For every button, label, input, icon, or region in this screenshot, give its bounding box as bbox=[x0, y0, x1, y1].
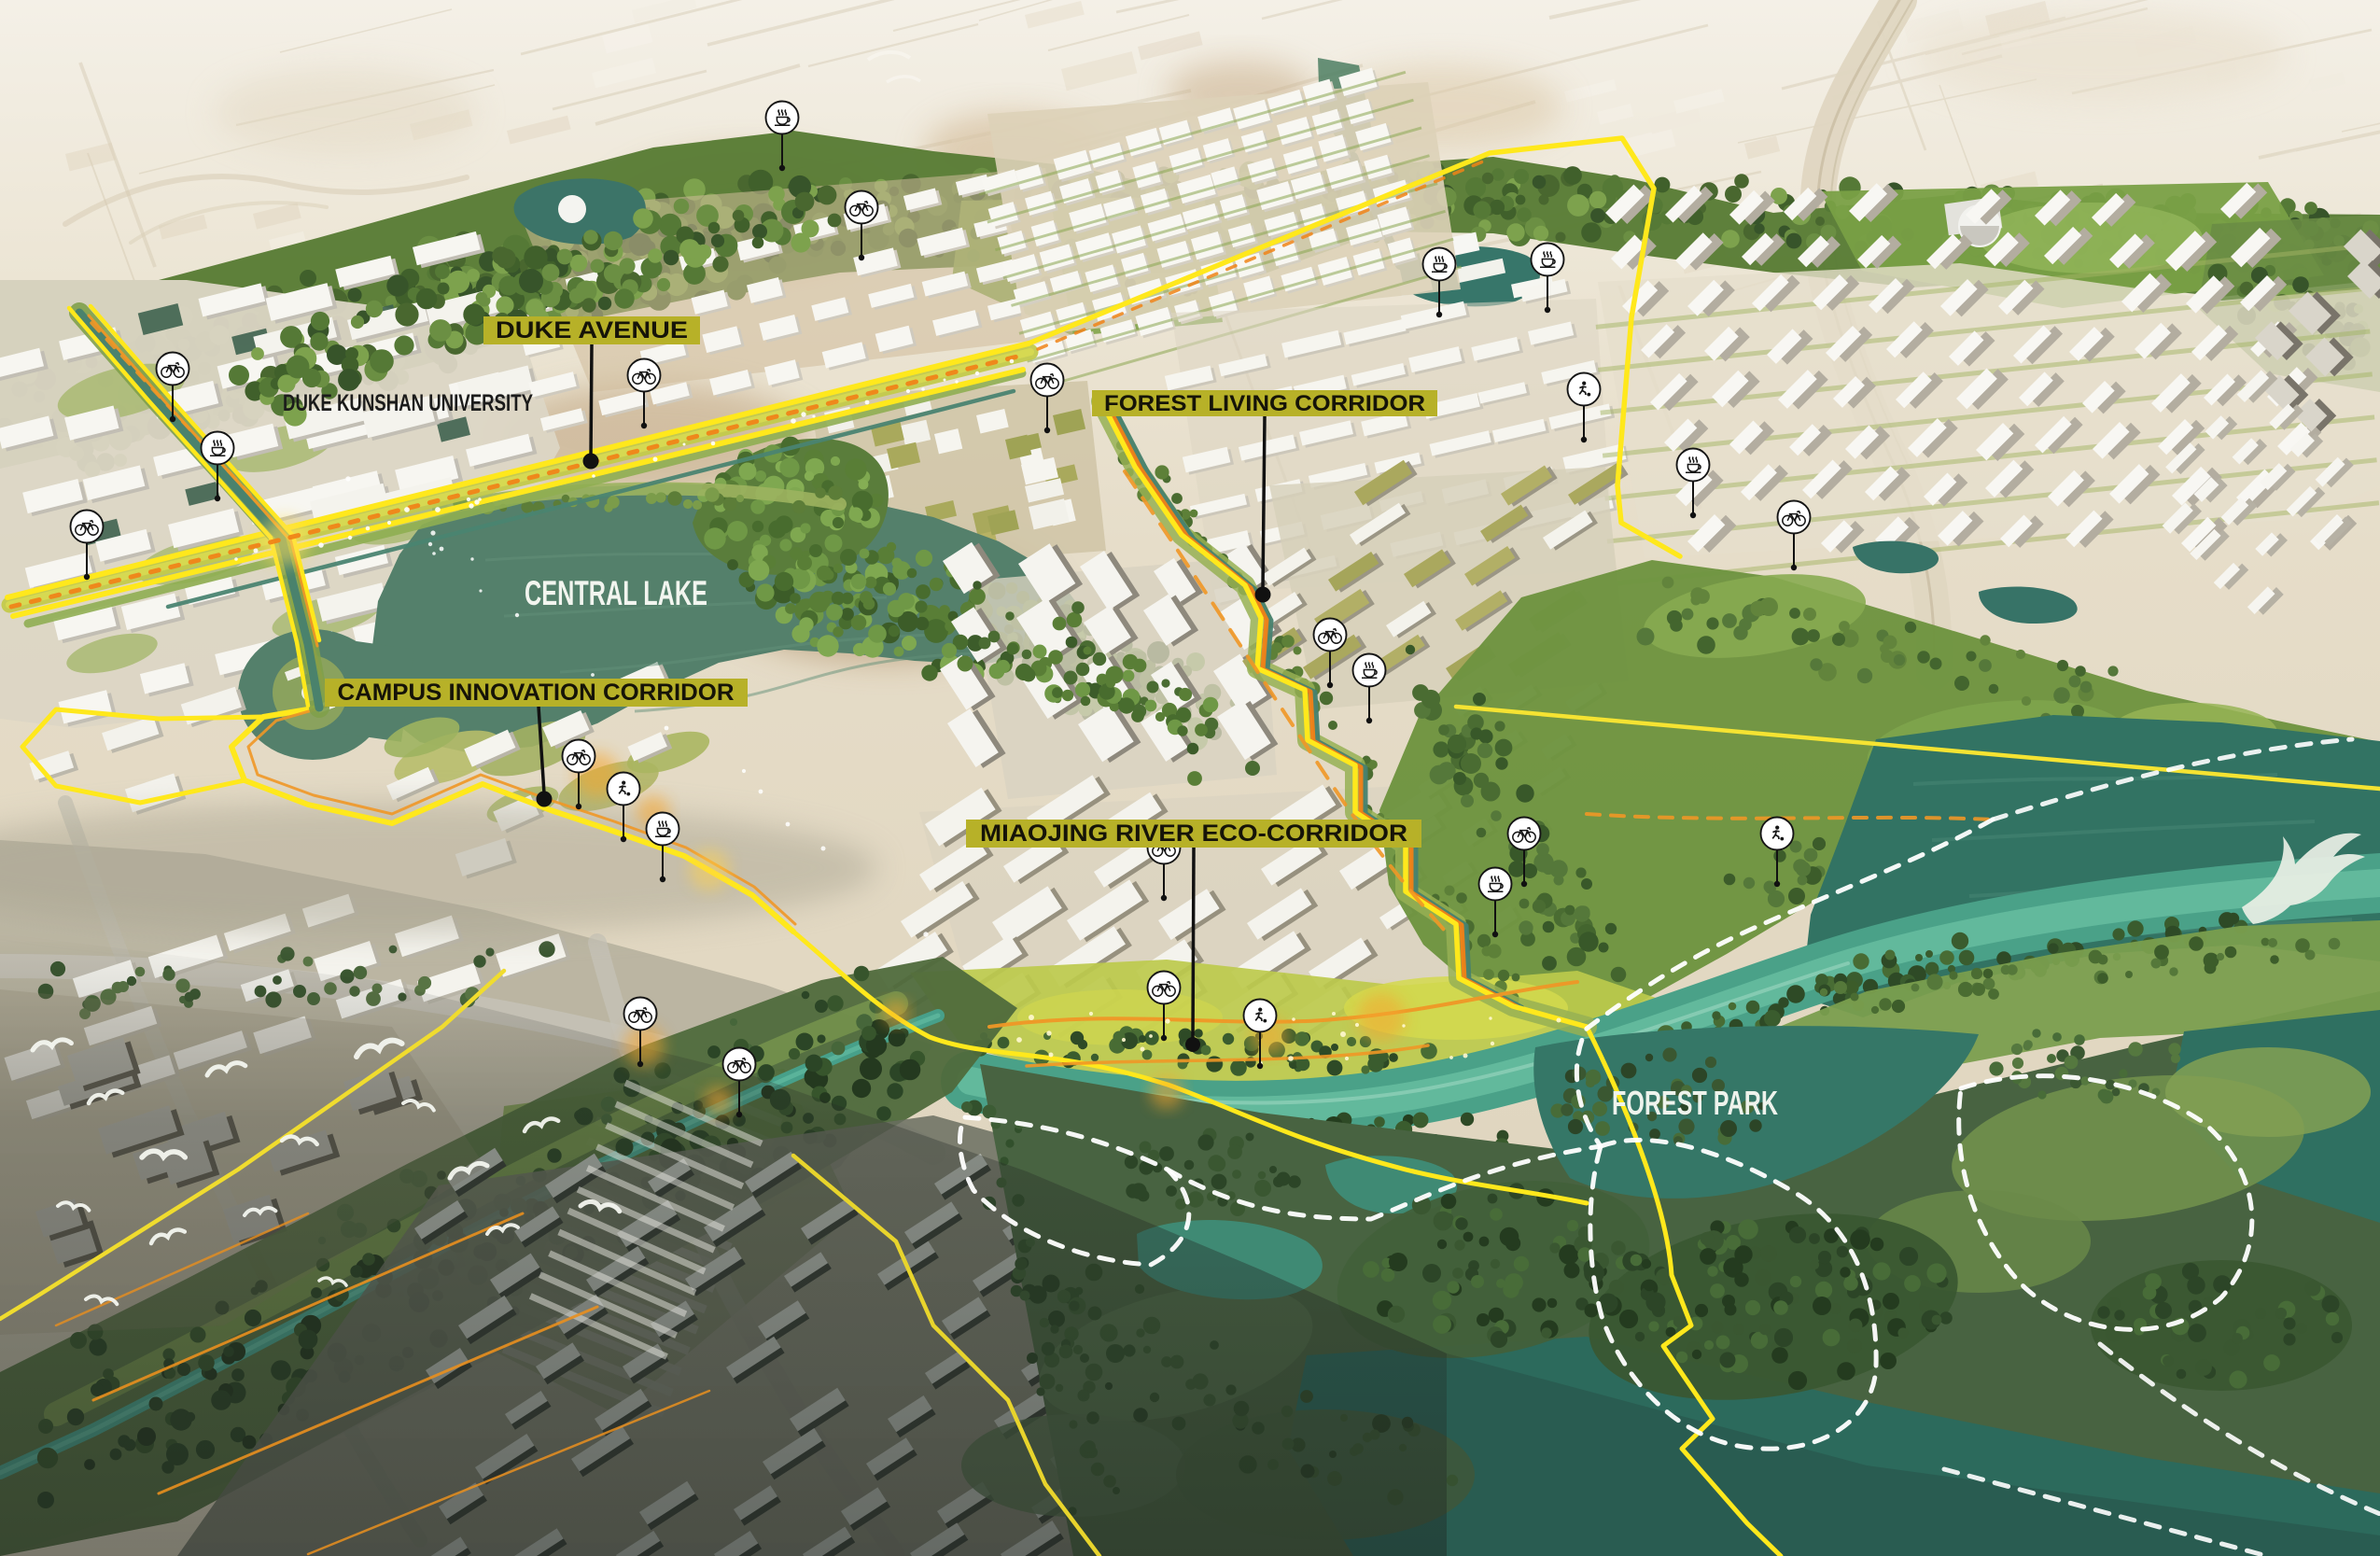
svg-text:CAMPUS INNOVATION CORRIDOR: CAMPUS INNOVATION CORRIDOR bbox=[338, 680, 735, 706]
svg-text:CENTRAL LAKE: CENTRAL LAKE bbox=[525, 574, 707, 612]
svg-text:DUKE KUNSHAN UNIVERSITY: DUKE KUNSHAN UNIVERSITY bbox=[283, 390, 533, 416]
svg-text:FOREST LIVING CORRIDOR: FOREST LIVING CORRIDOR bbox=[1104, 391, 1425, 416]
svg-text:DUKE AVENUE: DUKE AVENUE bbox=[496, 317, 688, 343]
svg-text:FOREST PARK: FOREST PARK bbox=[1612, 1084, 1778, 1122]
svg-text:MIAOJING RIVER ECO-CORRIDOR: MIAOJING RIVER ECO-CORRIDOR bbox=[980, 820, 1407, 847]
